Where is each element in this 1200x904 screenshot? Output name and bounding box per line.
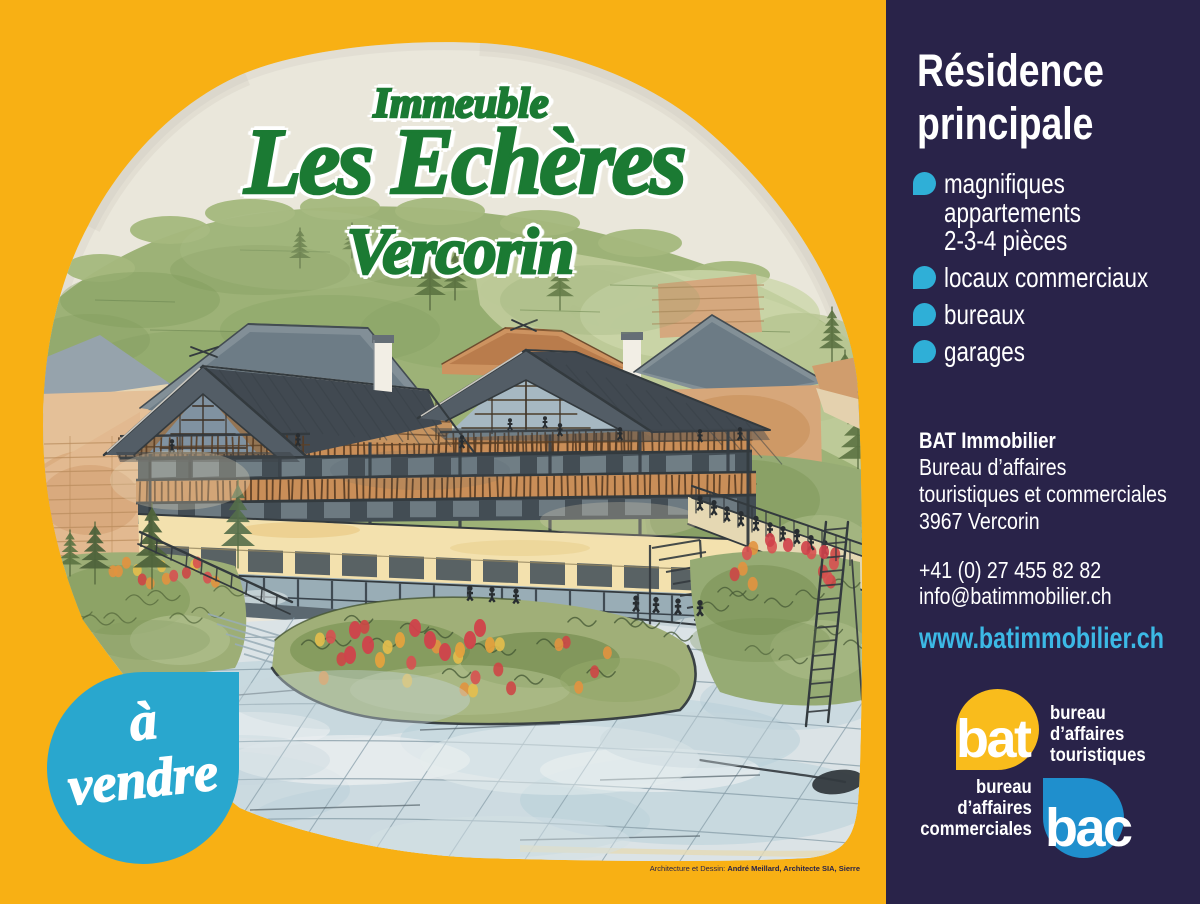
svg-text:bat: bat	[956, 709, 1032, 769]
svg-text:bac: bac	[1045, 798, 1132, 858]
